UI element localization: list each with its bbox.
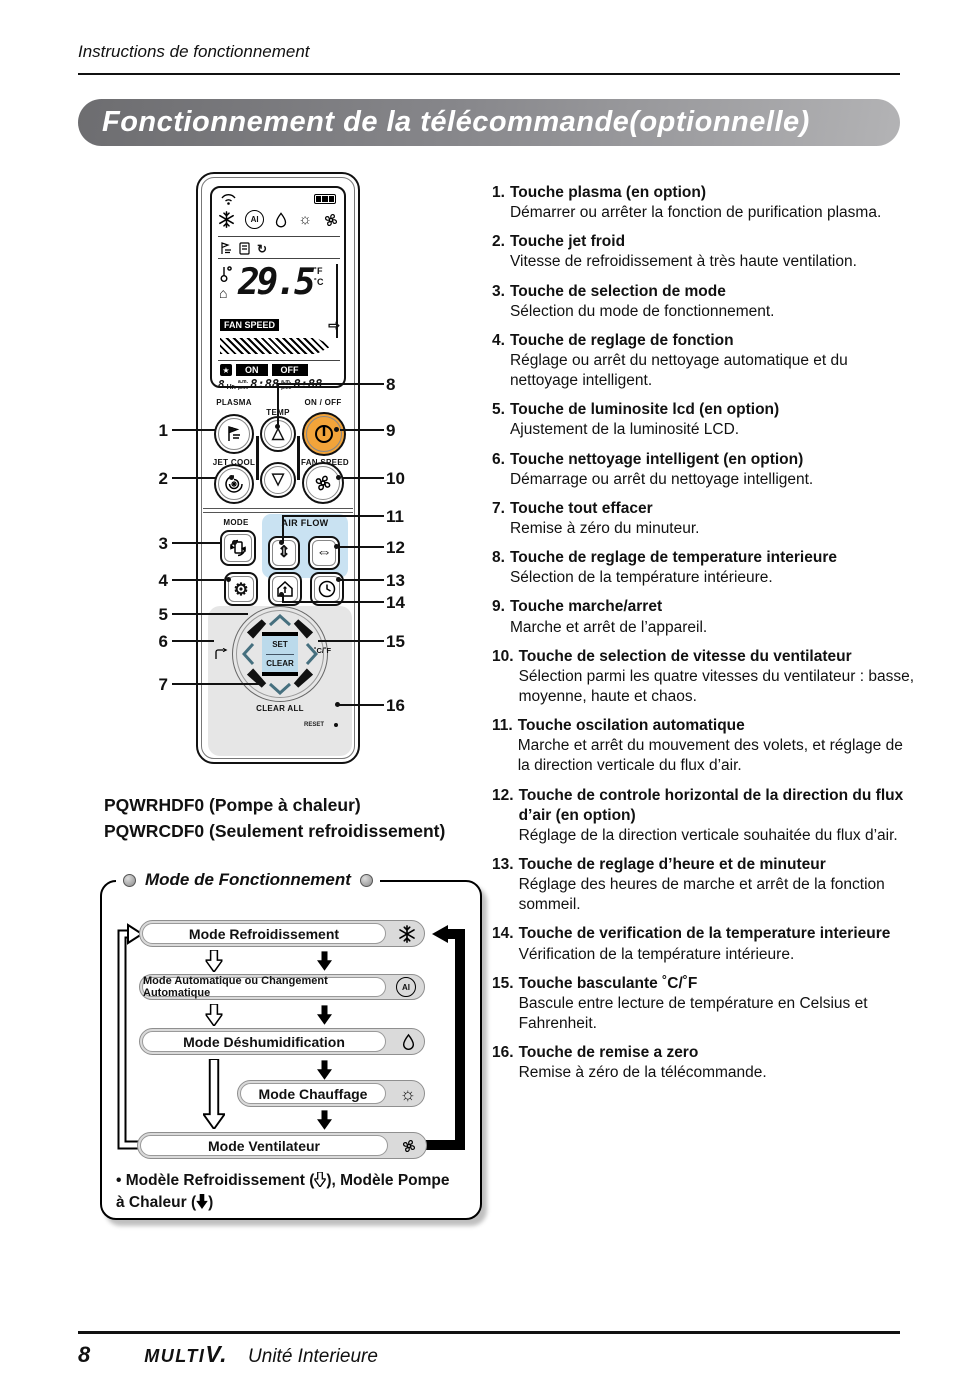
callout-8: 8 — [386, 375, 395, 395]
item-description: Vérification de la température intérieur… — [519, 945, 891, 965]
item-description: Sélection parmi les quatre vitesses du v… — [519, 667, 916, 707]
clock-icon — [317, 579, 337, 599]
fanspeed-button — [302, 462, 344, 504]
right-arrow-icon: ⇨ — [328, 318, 340, 332]
callout-7: 7 — [140, 675, 168, 695]
callout-line — [318, 640, 384, 642]
item-title: Touche de reglage d’heure et de minuteur — [519, 855, 916, 875]
filled-down-arrow — [317, 1110, 332, 1130]
list-item: 11. Touche oscilation automatique Marche… — [492, 716, 916, 776]
callout-line — [172, 613, 248, 615]
header-rule — [78, 73, 900, 75]
manual-page: Instructions de fonctionnement Fonctionn… — [0, 0, 954, 1400]
callout-line — [278, 383, 384, 385]
item-title: Touche de selection de mode — [510, 282, 775, 302]
item-number: 6. — [492, 450, 505, 490]
fan-icon — [400, 1137, 418, 1155]
mode-label: Mode Déshumidification — [142, 1031, 386, 1052]
callout-dot — [335, 702, 340, 707]
item-title: Touche nettoyage intelligent (en option) — [510, 450, 813, 470]
lcd-temperature: 29.5 — [238, 262, 313, 303]
unit-f: ˚F — [314, 266, 324, 277]
item-number: 10. — [492, 647, 514, 707]
mode-label: Mode Ventilateur — [140, 1135, 388, 1156]
item-title: Touche basculante ˚C/˚F — [519, 974, 916, 994]
droplet-icon — [274, 212, 288, 228]
airflow-label: AIR FLOW — [262, 518, 348, 528]
filled-down-arrow — [317, 1005, 332, 1025]
nav-down-chevron — [268, 682, 292, 695]
mode-pill-fan: Mode Ventilateur — [137, 1132, 427, 1159]
remote-lcd-display: AI ☼ ↻ ⌂ 29.5 ˚F — [210, 186, 346, 388]
page-header: Instructions de fonctionnement — [78, 42, 310, 62]
note-text: ), Modèle Pompe — [326, 1172, 449, 1189]
item-description: Marche et arrêt du mouvement des volets,… — [518, 736, 916, 776]
set-label: SET — [272, 640, 288, 649]
callout-12: 12 — [386, 538, 405, 558]
item-description: Remise à zéro de la télécommande. — [519, 1063, 767, 1083]
item-number: 1. — [492, 183, 505, 223]
temp-bracket — [256, 436, 259, 480]
callout-line — [282, 515, 284, 543]
callout-dot — [275, 424, 280, 429]
sun-icon: ☼ — [298, 212, 312, 227]
set-clear-button: SET CLEAR — [262, 632, 298, 676]
callout-dot — [279, 592, 284, 597]
note-text: à Chaleur ( — [116, 1194, 196, 1211]
plasma-button — [214, 414, 254, 454]
item-description: Réglage ou arrêt du nettoyage automatiqu… — [510, 351, 916, 391]
mode-pill-heating: Mode Chauffage ☼ — [237, 1080, 425, 1107]
outline-down-arrow-icon — [314, 1172, 326, 1187]
callout-dot — [229, 427, 234, 432]
unit-c: ˚C — [314, 277, 324, 288]
ampm-label: a.m.p.m. — [238, 380, 248, 391]
callout-3: 3 — [140, 534, 168, 554]
temp-down-button: ▽ — [260, 462, 296, 498]
item-title: Touche de reglage de temperature interie… — [510, 548, 837, 568]
ai-mode-icon: AI — [245, 210, 264, 229]
item-title: Touche marche/arret — [510, 597, 707, 617]
plasma-button-label: PLASMA — [210, 398, 258, 407]
callout-dot — [334, 427, 339, 432]
mode-icon — [227, 537, 249, 559]
list-item: 14. Touche de verification de la tempera… — [492, 924, 916, 964]
note-text: • Modèle Refroidissement ( — [116, 1172, 314, 1189]
operation-mode-box: Mode de Fonctionnement Mode Refroidissem… — [100, 880, 482, 1220]
power-button — [302, 412, 346, 456]
callout-line — [172, 429, 216, 431]
item-title: Touche tout effacer — [510, 499, 700, 519]
autoclean-mini-icon: ↻ — [257, 243, 267, 255]
item-title: Touche jet froid — [510, 232, 857, 252]
jetcool-button — [214, 464, 254, 504]
mode-box-note: • Modèle Refroidissement (), Modèle Pomp… — [116, 1170, 468, 1214]
model-names: PQWRHDF0 (Pompe à chaleur) PQWRCDF0 (Seu… — [104, 792, 445, 844]
list-item: 6. Touche nettoyage intelligent (en opti… — [492, 450, 916, 490]
callout-line — [338, 546, 384, 548]
nav-left-chevron — [242, 642, 255, 666]
item-description: Sélection de la température intérieure. — [510, 568, 837, 588]
item-number: 8. — [492, 548, 505, 588]
item-description: Réglage de la direction verticale souhai… — [519, 826, 916, 846]
item-number: 9. — [492, 597, 505, 637]
callout-line — [282, 515, 384, 517]
filter-mini-icon — [239, 242, 250, 255]
callout-line — [277, 383, 279, 426]
mode-button-label: MODE — [212, 518, 260, 527]
house-mini-icon: ⌂ — [219, 286, 227, 300]
sun-icon: ☼ — [400, 1085, 417, 1103]
lcd-units: ˚F ˚C — [314, 266, 324, 288]
callout-line — [172, 477, 216, 479]
lcd-divider — [218, 236, 340, 237]
section-title: Fonctionnement de la télécommande(option… — [102, 106, 810, 139]
list-item: 9. Touche marche/arret Marche et arrêt d… — [492, 597, 916, 637]
body-seam — [203, 512, 353, 513]
temp-bracket — [297, 436, 300, 480]
reset-dot — [334, 723, 338, 727]
long-outline-down-arrow — [203, 1059, 225, 1129]
nav-up-chevron — [268, 614, 292, 627]
note-text: ) — [208, 1194, 213, 1211]
callout-4: 4 — [140, 571, 168, 591]
model-coolingonly: PQWRCDF0 (Seulement refroidissement) — [104, 818, 445, 844]
item-description: Démarrer ou arrêter la fonction de purif… — [510, 203, 881, 223]
ai-icon: AI — [396, 977, 416, 997]
callout-line — [282, 601, 384, 603]
item-number: 4. — [492, 331, 505, 391]
outline-down-arrow — [205, 950, 223, 972]
timer-hours-label: Hr. — [227, 384, 236, 391]
list-item: 4. Touche de reglage de fonction Réglage… — [492, 331, 916, 391]
cf-toggle-label: ˚C/˚F — [314, 646, 331, 655]
item-description: Ajustement de la luminosité LCD. — [510, 420, 779, 440]
callout-dot — [232, 540, 237, 545]
callout-dot — [226, 577, 231, 582]
item-number: 7. — [492, 499, 505, 539]
footer-subtitle: Unité Interieure — [248, 1346, 378, 1368]
callout-11: 11 — [386, 507, 404, 527]
list-item: 5. Touche de luminosite lcd (en option) … — [492, 400, 916, 440]
reset-label: RESET — [304, 722, 324, 728]
lcd-divider — [218, 258, 340, 259]
droplet-icon — [401, 1033, 416, 1050]
item-number: 16. — [492, 1043, 514, 1083]
power-icon — [313, 423, 335, 445]
brand-logo: MULTIV. — [144, 1341, 228, 1368]
lcd-timer-row: ★ ON OFF — [220, 364, 308, 376]
model-heatpump: PQWRHDF0 (Pompe à chaleur) — [104, 792, 445, 818]
item-number: 5. — [492, 400, 505, 440]
house-thermometer-icon — [275, 579, 295, 599]
list-item: 7. Touche tout effacer Remise à zéro du … — [492, 499, 916, 539]
plasma-mini-icon — [220, 242, 232, 255]
gear-icon: ⚙ — [233, 581, 248, 598]
callout-line — [172, 542, 220, 544]
airflow-vertical-button: ⇕ — [268, 536, 300, 570]
item-description: Vitesse de refroidissement à très haute … — [510, 252, 857, 272]
callout-6: 6 — [140, 632, 168, 652]
item-title: Touche de selection de vitesse du ventil… — [519, 647, 916, 667]
mode-label: Mode Chauffage — [240, 1083, 386, 1104]
filled-down-arrow — [317, 1060, 332, 1080]
callout-13: 13 — [386, 571, 405, 591]
filled-down-arrow-icon — [196, 1194, 208, 1209]
item-title: Touche de luminosite lcd (en option) — [510, 400, 779, 420]
body-seam — [203, 508, 353, 509]
thermometer-icon — [219, 266, 232, 282]
lcd-fanspeed-row: FAN SPEED ⇨ — [220, 318, 340, 332]
triangle-down-icon: ▽ — [272, 472, 284, 488]
mode-pill-cooling: Mode Refroidissement — [139, 920, 425, 947]
callout-line — [172, 640, 214, 642]
item-title: Touche plasma (en option) — [510, 183, 881, 203]
callout-15: 15 — [386, 632, 405, 652]
mode-pill-dehumidify: Mode Déshumidification — [139, 1028, 425, 1055]
list-item: 10. Touche de selection de vitesse du ve… — [492, 647, 916, 707]
leftright-arrow-icon: ⇔ — [316, 545, 332, 561]
airflow-horizontal-button: ⇔ — [308, 536, 340, 570]
item-number: 11. — [492, 716, 513, 776]
fanspeed-bar-graph — [220, 338, 332, 354]
ampm-label: a.m.p.m. — [281, 380, 291, 391]
list-item: 8. Touche de reglage de temperature inte… — [492, 548, 916, 588]
clear-label: CLEAR — [266, 659, 294, 668]
item-description: Bascule entre lecture de température en … — [519, 994, 916, 1034]
list-item: 3. Touche de selection de mode Sélection… — [492, 282, 916, 322]
sleep-timer-icon — [214, 648, 228, 662]
snowflake-icon — [218, 211, 235, 228]
item-number: 13. — [492, 855, 514, 915]
item-description: Démarrage ou arrêt du nettoyage intellig… — [510, 470, 813, 490]
lcd-divider — [218, 360, 340, 361]
page-footer: 8 MULTIV. Unité Interieure — [78, 1341, 378, 1368]
item-number: 3. — [492, 282, 505, 322]
outline-down-arrow — [205, 1004, 223, 1026]
battery-icon — [314, 194, 336, 204]
lcd-mode-icons: AI ☼ — [218, 210, 340, 229]
callout-dot — [279, 540, 284, 545]
remote-control-illustration: AI ☼ ↻ ⌂ 29.5 ˚F — [196, 172, 360, 764]
item-title: Touche oscilation automatique — [518, 716, 916, 736]
item-description: Remise à zéro du minuteur. — [510, 519, 700, 539]
item-number: 15. — [492, 974, 514, 1034]
section-title-banner: Fonctionnement de la télécommande(option… — [78, 99, 900, 146]
timer-time-on: 8:88 — [250, 377, 279, 391]
callout-14: 14 — [386, 593, 405, 613]
callout-dot — [334, 544, 339, 549]
list-item: 1. Touche plasma (en option) Démarrer ou… — [492, 183, 916, 223]
callout-dot — [336, 475, 341, 480]
item-description: Marche et arrêt de l’appareil. — [510, 618, 707, 638]
fan-icon — [312, 472, 334, 494]
fanspeed-indicator: FAN SPEED — [220, 319, 279, 331]
callout-line — [172, 683, 260, 685]
list-item: 12. Touche de controle horizontal de la … — [492, 786, 916, 846]
callout-line — [172, 579, 224, 581]
lcd-function-icons: ↻ — [220, 242, 267, 255]
item-title: Touche de controle horizontal de la dire… — [519, 786, 916, 826]
callout-10: 10 — [386, 469, 405, 489]
onoff-button-label: ON / OFF — [296, 398, 350, 407]
mode-label: Mode Refroidissement — [142, 923, 386, 944]
callout-5: 5 — [140, 605, 168, 625]
item-title: Touche de verification de la temperature… — [519, 924, 891, 944]
mode-button — [220, 530, 256, 566]
mode-label: Mode Automatique ou Changement Automatiq… — [142, 977, 386, 997]
callout-line — [338, 704, 384, 706]
list-item: 16. Touche de remise a zero Remise à zér… — [492, 1043, 916, 1083]
item-number: 2. — [492, 232, 505, 272]
item-description: Sélection du mode de fonctionnement. — [510, 302, 775, 322]
mode-pill-auto: Mode Automatique ou Changement Automatiq… — [139, 974, 425, 1000]
item-number: 14. — [492, 924, 514, 964]
plasma-icon — [225, 425, 243, 443]
list-item: 13. Touche de reglage d’heure et de minu… — [492, 855, 916, 915]
filled-down-arrow — [317, 951, 332, 971]
clearall-label: CLEAR ALL — [238, 704, 322, 713]
item-title: Touche de reglage de fonction — [510, 331, 916, 351]
callout-line — [340, 429, 384, 431]
jetcool-icon — [224, 474, 244, 494]
timer-hours: 8 — [218, 378, 225, 391]
callout-dot — [336, 577, 341, 582]
item-number: 12. — [492, 786, 514, 846]
item-description: Réglage des heures de marche et arrêt de… — [519, 875, 916, 915]
item-title: Touche de remise a zero — [519, 1043, 767, 1063]
callout-2: 2 — [140, 469, 168, 489]
list-item: 15. Touche basculante ˚C/˚F Bascule entr… — [492, 974, 916, 1034]
callout-16: 16 — [386, 696, 405, 716]
callout-line — [340, 579, 384, 581]
page-number: 8 — [78, 1342, 90, 1368]
updown-arrow-icon: ⇕ — [277, 545, 290, 561]
timer-on-indicator: ON — [236, 364, 268, 376]
callout-line — [342, 477, 384, 479]
callout-1: 1 — [140, 421, 168, 441]
footer-rule — [78, 1331, 900, 1334]
description-list: 1. Touche plasma (en option) Démarrer ou… — [492, 183, 916, 1092]
signal-icon — [220, 193, 237, 205]
sleep-star-icon: ★ — [220, 364, 232, 376]
list-item: 2. Touche jet froid Vitesse de refroidis… — [492, 232, 916, 272]
callout-9: 9 — [386, 421, 395, 441]
fan-icon — [322, 211, 340, 229]
snowflake-icon — [398, 925, 416, 943]
timer-off-indicator: OFF — [272, 364, 308, 376]
callout-dot — [229, 475, 234, 480]
